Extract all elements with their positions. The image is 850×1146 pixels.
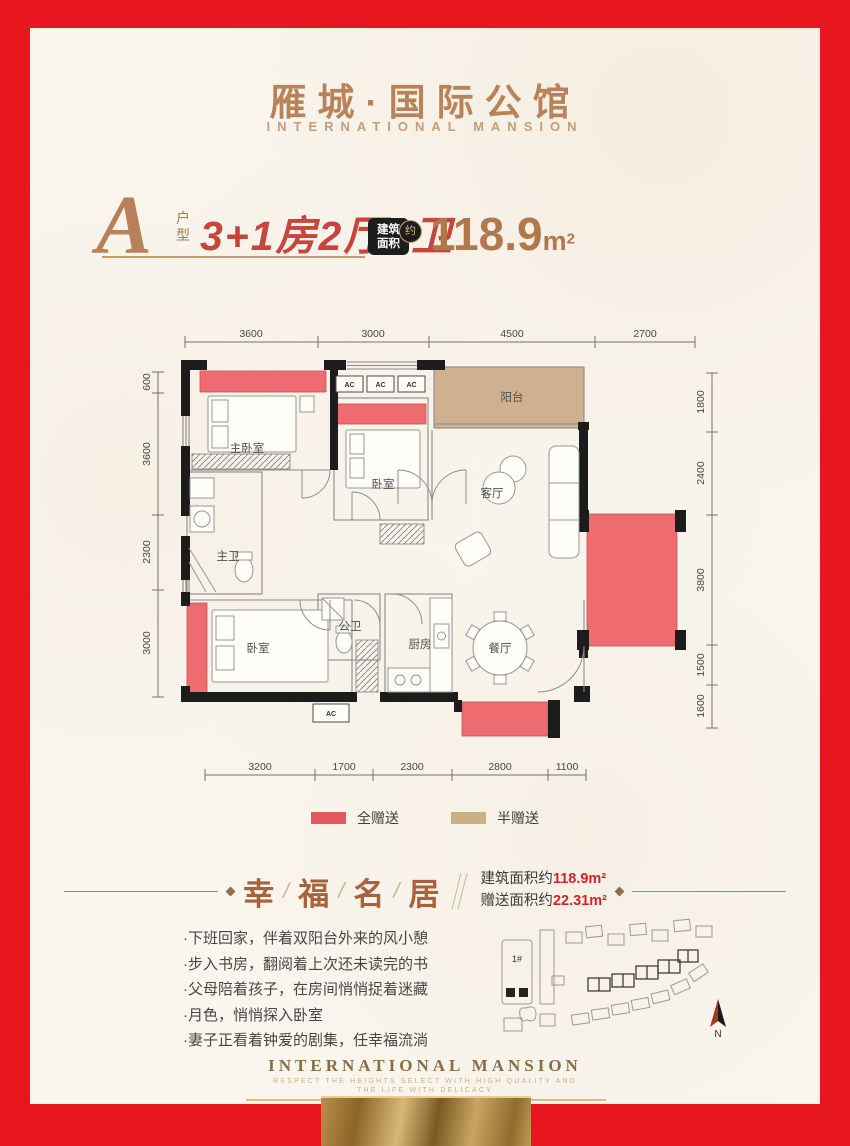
- slogan-banner: 幸 / 福 / 名 / 居 建筑面积约118.9m² 赠送面积约22.31m²: [64, 868, 786, 914]
- gift-strip-bedroom3: [187, 603, 207, 693]
- area1-label: 建筑面积约: [480, 871, 553, 887]
- banner-char-2: 福: [298, 869, 329, 914]
- banner-char-1: 幸: [243, 869, 274, 914]
- gift-block-right: [587, 514, 677, 646]
- lifestyle-copy: ·下班回家，伴着双阳台外来的风小憩 ·步入书房，翻阅着上次还未读完的书 ·父母陪…: [183, 926, 428, 1054]
- legend-full-gift: 全赠送: [311, 808, 399, 828]
- bullet-5: ·妻子正看着钟爱的剧集，任幸福流淌: [183, 1028, 428, 1054]
- dim-bottom-4: 2800: [488, 761, 512, 773]
- dim-left-1: 600: [141, 373, 153, 391]
- footer-tagline-1: RESPECT THE HEIGHTS SELECT WITH HIGH QUA…: [0, 1078, 850, 1085]
- gold-line-right: [531, 1099, 606, 1101]
- room-bedroom2: 卧室: [372, 477, 395, 491]
- banner-line-right: [632, 891, 786, 892]
- room-public-bath: 公卫: [339, 620, 362, 633]
- dim-top-1: 3600: [239, 328, 263, 340]
- ac-label-1: AC: [344, 382, 354, 389]
- area-badge-approx: 约: [399, 220, 422, 243]
- unit-letter-suffix: 户 型: [176, 210, 190, 244]
- area-number: 118.9m2: [430, 207, 575, 261]
- banner-char-4: 居: [408, 869, 439, 914]
- gift-strip-master: [200, 371, 326, 392]
- dim-bottom-1: 3200: [248, 761, 272, 773]
- banner-sep-2: /: [338, 878, 344, 904]
- siteplan-sketch: 1#: [488, 914, 726, 1036]
- gift-block-bottom: [462, 702, 548, 736]
- room-dining: 餐厅: [489, 641, 512, 655]
- dim-right-1: 1800: [695, 390, 707, 414]
- banner-dot-right: [615, 886, 625, 896]
- area-value: 118.9: [430, 208, 543, 260]
- siteplan-buildings-bold: [588, 950, 698, 991]
- bullet-2: ·步入书房，翻阅着上次还未读完的书: [183, 952, 428, 978]
- dim-left-4: 3000: [141, 631, 153, 655]
- unit-underline-thick: [100, 261, 358, 265]
- building-number: 1#: [512, 954, 522, 964]
- ac-label-2: AC: [375, 382, 385, 389]
- project-title: 雁城·国际公馆: [0, 72, 850, 126]
- gold-line-left: [246, 1099, 321, 1101]
- unit-underline-thin: [102, 256, 365, 258]
- ac-label-3: AC: [406, 382, 416, 389]
- legend-half-gift: 半赠送: [451, 808, 539, 828]
- dim-top-3: 4500: [500, 328, 524, 340]
- area-sup: 2: [567, 231, 575, 248]
- full-gift-label: 全赠送: [357, 808, 399, 828]
- banner-title: 幸 / 福 / 名 / 居: [243, 869, 439, 914]
- bullet-3: ·父母陪着孩子，在房间悄悄捉着迷藏: [183, 977, 428, 1003]
- area-unit: m: [543, 226, 567, 256]
- north-arrow: N: [701, 996, 735, 1038]
- dim-right-2: 2400: [695, 461, 707, 485]
- banner-sep-1: /: [283, 878, 289, 904]
- banner-char-3: 名: [353, 869, 384, 914]
- dim-top-4: 2700: [633, 328, 657, 340]
- banner-area-line1: 建筑面积约118.9m²: [480, 869, 607, 891]
- floorplan-drawing: AC AC AC AC 主卧室 卧室 阳台 客厅 主卫 卧室 公卫 厨房 餐厅: [130, 325, 730, 795]
- dim-bottom-2: 1700: [332, 761, 356, 773]
- banner-areas: 建筑面积约118.9m² 赠送面积约22.31m²: [480, 869, 607, 913]
- banner-dot-left: [226, 886, 236, 896]
- bullet-1: ·下班回家，伴着双阳台外来的风小憩: [183, 926, 428, 952]
- dim-right-5: 1600: [695, 694, 707, 718]
- banner-sep-3: /: [393, 878, 399, 904]
- dim-bottom-3: 2300: [400, 761, 424, 773]
- footer-title: INTERNATIONAL MANSION: [0, 1056, 850, 1076]
- gold-relief-band: [321, 1096, 531, 1146]
- dim-right-3: 3800: [695, 568, 707, 592]
- ac-label-4: AC: [326, 711, 336, 718]
- room-master-bath: 主卫: [217, 550, 240, 563]
- dim-top-2: 3000: [361, 328, 385, 340]
- dim-left-3: 2300: [141, 540, 153, 564]
- project-subtitle: INTERNATIONAL MANSION: [0, 119, 850, 134]
- north-arrow-left: [710, 999, 718, 1027]
- highlight-block-2: [519, 988, 528, 997]
- half-gift-label: 半赠送: [497, 808, 539, 828]
- room-master-bedroom: 主卧室: [230, 441, 265, 455]
- bullet-4: ·月色，悄悄探入卧室: [183, 1003, 428, 1029]
- area1-value: 118.9m²: [553, 871, 606, 887]
- north-arrow-right: [718, 999, 726, 1027]
- banner-line-left: [64, 891, 218, 892]
- dim-right-4: 1500: [695, 653, 707, 677]
- suffix-char-1: 户: [176, 210, 190, 227]
- dim-bottom-5: 1100: [556, 761, 579, 773]
- banner-divider: [452, 873, 468, 909]
- half-gift-swatch: [451, 812, 486, 824]
- poster-page: 雁城·国际公馆 INTERNATIONAL MANSION A 户 型 3+1房…: [0, 0, 850, 1146]
- full-gift-swatch: [311, 812, 346, 824]
- room-living: 客厅: [481, 486, 504, 500]
- room-balcony: 阳台: [501, 390, 524, 404]
- siteplan-buildings-light: [502, 919, 712, 1031]
- gift-legend: 全赠送 半赠送: [0, 808, 850, 828]
- area2-value: 22.31m²: [553, 893, 607, 909]
- room-kitchen: 厨房: [409, 638, 432, 651]
- banner-area-line2: 赠送面积约22.31m²: [480, 891, 607, 913]
- footer-tagline-2: THE LIFE WITH DELICACY: [0, 1087, 850, 1094]
- dim-left-2: 3600: [141, 442, 153, 466]
- gift-strip-bedroom2: [334, 404, 426, 424]
- highlight-block-1: [506, 988, 515, 997]
- north-label: N: [714, 1029, 721, 1038]
- suffix-char-2: 型: [176, 227, 190, 244]
- room-bedroom3: 卧室: [247, 641, 270, 655]
- area2-label: 赠送面积约: [480, 893, 553, 909]
